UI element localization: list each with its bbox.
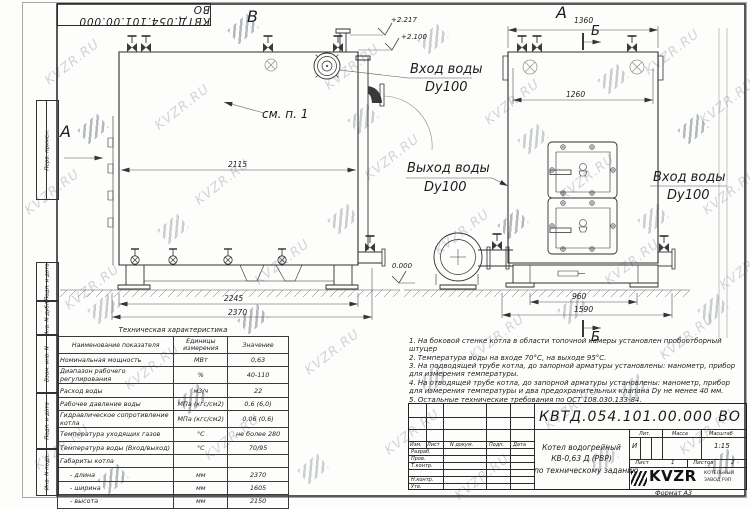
tech-table-cell: 70/95 bbox=[228, 441, 289, 454]
tech-table-row: Температура уходящих газов°Сне более 280 bbox=[58, 428, 289, 441]
tech-table-cell: - длина bbox=[58, 468, 174, 481]
kvzr-logo-text: KVZR bbox=[649, 467, 697, 485]
ground-line bbox=[60, 290, 690, 297]
tech-table-cell: Рабочее давление воды bbox=[58, 397, 174, 410]
sig-razrab: Разраб. bbox=[411, 449, 431, 455]
product-name: Котел водогрейный КВ-0,63 Д (РВР) по тех… bbox=[534, 429, 629, 489]
elevation-2217: +2.217 bbox=[391, 16, 417, 24]
tech-table-cell: % bbox=[174, 367, 228, 384]
margin-stamp: Взам. инв. N bbox=[36, 334, 59, 394]
furnace-doors bbox=[548, 142, 617, 254]
sheet-label: Лист bbox=[635, 460, 649, 466]
mass-header: Масса bbox=[672, 431, 688, 437]
product-name-line2: КВ-0,63 Д (РВР) bbox=[534, 453, 629, 465]
outlet-callout: Выход воды bbox=[407, 161, 490, 176]
tech-table-cell: мм bbox=[174, 468, 228, 481]
tech-table-cell: 2150 bbox=[228, 495, 289, 508]
tech-col-value: Значение bbox=[228, 337, 289, 354]
note-item: 1. На боковой стенке котла в области топ… bbox=[409, 337, 745, 353]
note-item: 2. Температура воды на входе 70°С, на вы… bbox=[409, 354, 745, 362]
dim-1590: 1590 bbox=[574, 305, 593, 314]
tech-table-cell bbox=[174, 454, 228, 467]
inlet-side-callout: Вход воды bbox=[410, 62, 483, 77]
margin-stamp-label: Подп. и дата bbox=[45, 394, 51, 449]
tech-col-units: Единицы измерения bbox=[174, 337, 228, 354]
document-designation: КВТД.054.101.00.000 ВО bbox=[534, 404, 746, 429]
tech-table-cell: 22 bbox=[228, 384, 289, 397]
dim-2370: 2370 bbox=[228, 308, 247, 317]
margin-stamp-label: Инв. N подл. bbox=[45, 445, 51, 500]
tech-table-row: - ширинамм1605 bbox=[58, 481, 289, 494]
tech-table-cell: 0,63 bbox=[228, 354, 289, 367]
technical-notes: 1. На боковой стенке котла в области топ… bbox=[409, 337, 745, 404]
boiler-front-view bbox=[503, 36, 675, 287]
col-izm: Изм. bbox=[410, 442, 422, 448]
col-ndokum: N докум. bbox=[450, 442, 473, 448]
tech-table-cell: 40-110 bbox=[228, 367, 289, 384]
tech-table-row: Гидравлическое сопротивление котлаМПа (к… bbox=[58, 411, 289, 428]
designation-top-box: КВТД.054.101.00.000 ВО bbox=[57, 3, 211, 26]
tech-table-cell: Температура уходящих газов bbox=[58, 428, 174, 441]
tech-table-row: - длинамм2370 bbox=[58, 468, 289, 481]
tech-table-row: - высотамм2150 bbox=[58, 495, 289, 508]
kvzr-logo-mark bbox=[631, 471, 647, 486]
elevation-2100: +2.100 bbox=[401, 33, 427, 41]
tech-table-row: Рабочее давление водыМПа (кгс/см2)0,6 (6… bbox=[58, 397, 289, 410]
sig-prov: Пров. bbox=[411, 456, 426, 462]
tech-table-cell: Гидравлическое сопротивление котла bbox=[58, 411, 174, 428]
view-arrow-label-a: А bbox=[60, 122, 71, 141]
margin-stamp-label: Взам. инв. N bbox=[45, 337, 51, 392]
blower-fan bbox=[392, 233, 513, 289]
tech-characteristics-table: Техническая характеристика Наименование … bbox=[57, 326, 289, 509]
dim-2245: 2245 bbox=[224, 294, 243, 303]
dim-1260: 1260 bbox=[566, 90, 585, 99]
note-item: 3. На подводящей трубе котла, до запорно… bbox=[409, 362, 745, 378]
tech-table-cell: 0,06 (0,6) bbox=[228, 411, 289, 428]
tech-col-name: Наименование показателя bbox=[58, 337, 174, 354]
outlet-dn: Dy100 bbox=[424, 180, 467, 195]
tech-table-cell: Номинальная мощность bbox=[58, 354, 174, 367]
tech-table-cell: °С bbox=[174, 441, 228, 454]
tech-table-cell: мм bbox=[174, 481, 228, 494]
dim-1360: 1360 bbox=[574, 16, 593, 25]
tech-table-cell: МВт bbox=[174, 354, 228, 367]
product-name-line1: Котел водогрейный bbox=[534, 442, 629, 454]
inlet-front-dn: Dy100 bbox=[667, 188, 710, 203]
lit-value: И bbox=[632, 442, 637, 450]
tech-table-cell: 1605 bbox=[228, 481, 289, 494]
inlet-side-dn: Dy100 bbox=[425, 80, 468, 95]
sig-utv: Утв. bbox=[411, 484, 422, 490]
col-podp: Подп. bbox=[489, 442, 504, 448]
scale-value: 1:15 bbox=[714, 442, 730, 450]
tech-table-row: Номинальная мощностьМВт0,63 bbox=[58, 354, 289, 367]
drawing-sheet: { "watermark": { "text": "KVZR.RU" }, "s… bbox=[0, 0, 750, 500]
format-label: Формат А3 bbox=[655, 489, 692, 497]
tech-table-cell: - высота bbox=[58, 495, 174, 508]
elevation-0000: 0.000 bbox=[392, 262, 412, 270]
inlet-flange-circle bbox=[314, 53, 340, 79]
tech-table-cell: °С bbox=[174, 428, 228, 441]
col-list: Лист bbox=[427, 442, 440, 448]
tech-table-cell: МПа (кгс/см2) bbox=[174, 411, 228, 428]
tech-table-cell bbox=[228, 454, 289, 467]
view-label-a: А bbox=[556, 3, 567, 22]
tech-table-cell: Габариты котла bbox=[58, 454, 174, 467]
tech-table-cell: 0,6 (6,0) bbox=[228, 397, 289, 410]
sig-nkontr: Н.контр. bbox=[411, 477, 433, 483]
kvzr-logo-sub1: КОТЕЛЬНЫЙ bbox=[704, 471, 734, 476]
margin-stamp: Инв. N подл. bbox=[36, 448, 59, 496]
tech-table-row: Температура воды (Вход/выход)°С70/95 bbox=[58, 441, 289, 454]
tech-table-cell: мм bbox=[174, 495, 228, 508]
tech-table-cell: 2370 bbox=[228, 468, 289, 481]
title-block: КВТД.054.101.00.000 ВО Изм. Лист N докум… bbox=[408, 403, 747, 490]
kvzr-logo-sub2: ЗАВОД РЭП bbox=[704, 478, 731, 483]
sheets-value: 2 bbox=[731, 460, 735, 466]
boiler-side-view bbox=[108, 23, 432, 289]
see-note-callout: см. п. 1 bbox=[262, 107, 308, 121]
lit-header: Лит. bbox=[639, 431, 651, 437]
scale-header: Масштаб bbox=[709, 431, 733, 437]
sheets-label: Листов bbox=[693, 460, 714, 466]
product-name-line3: по техническому заданию bbox=[534, 465, 629, 477]
margin-stamp: Перв. примен. bbox=[36, 100, 59, 200]
tech-table-title: Техническая характеристика bbox=[57, 326, 289, 334]
margin-stamp: Подп. и дата bbox=[36, 392, 59, 450]
tech-table-cell: Температура воды (Вход/выход) bbox=[58, 441, 174, 454]
dim-2115: 2115 bbox=[228, 160, 247, 169]
col-data: Дата bbox=[513, 442, 526, 448]
tech-table-cell: не более 280 bbox=[228, 428, 289, 441]
tech-table-cell: Расход воды bbox=[58, 384, 174, 397]
tech-table-cell: м3/ч bbox=[174, 384, 228, 397]
tech-table-cell: Диапазон рабочего регулирования bbox=[58, 367, 174, 384]
tech-table-cell: - ширина bbox=[58, 481, 174, 494]
view-label-b: В bbox=[247, 7, 258, 26]
margin-stamp-label: Перв. примен. bbox=[45, 123, 51, 178]
sheet-value: 1 bbox=[671, 460, 675, 466]
tech-table-cell: МПа (кгс/см2) bbox=[174, 397, 228, 410]
sig-tkontr: Т.контр. bbox=[411, 463, 433, 469]
tech-table-row: Диапазон рабочего регулирования%40-110 bbox=[58, 367, 289, 384]
section-label-b-top: Б bbox=[591, 24, 600, 39]
inlet-front-callout: Вход воды bbox=[653, 170, 726, 185]
designation-top-text: КВТД.054.101.00.000 ВО bbox=[58, 3, 210, 27]
tech-table-row: Расход водым3/ч22 bbox=[58, 384, 289, 397]
note-item: 4. На отводящей трубе котла, до запорной… bbox=[409, 379, 745, 395]
tech-table-row: Габариты котла bbox=[58, 454, 289, 467]
margin-stamp: Инв. N дубл. bbox=[36, 300, 59, 336]
dim-960: 960 bbox=[572, 292, 586, 301]
